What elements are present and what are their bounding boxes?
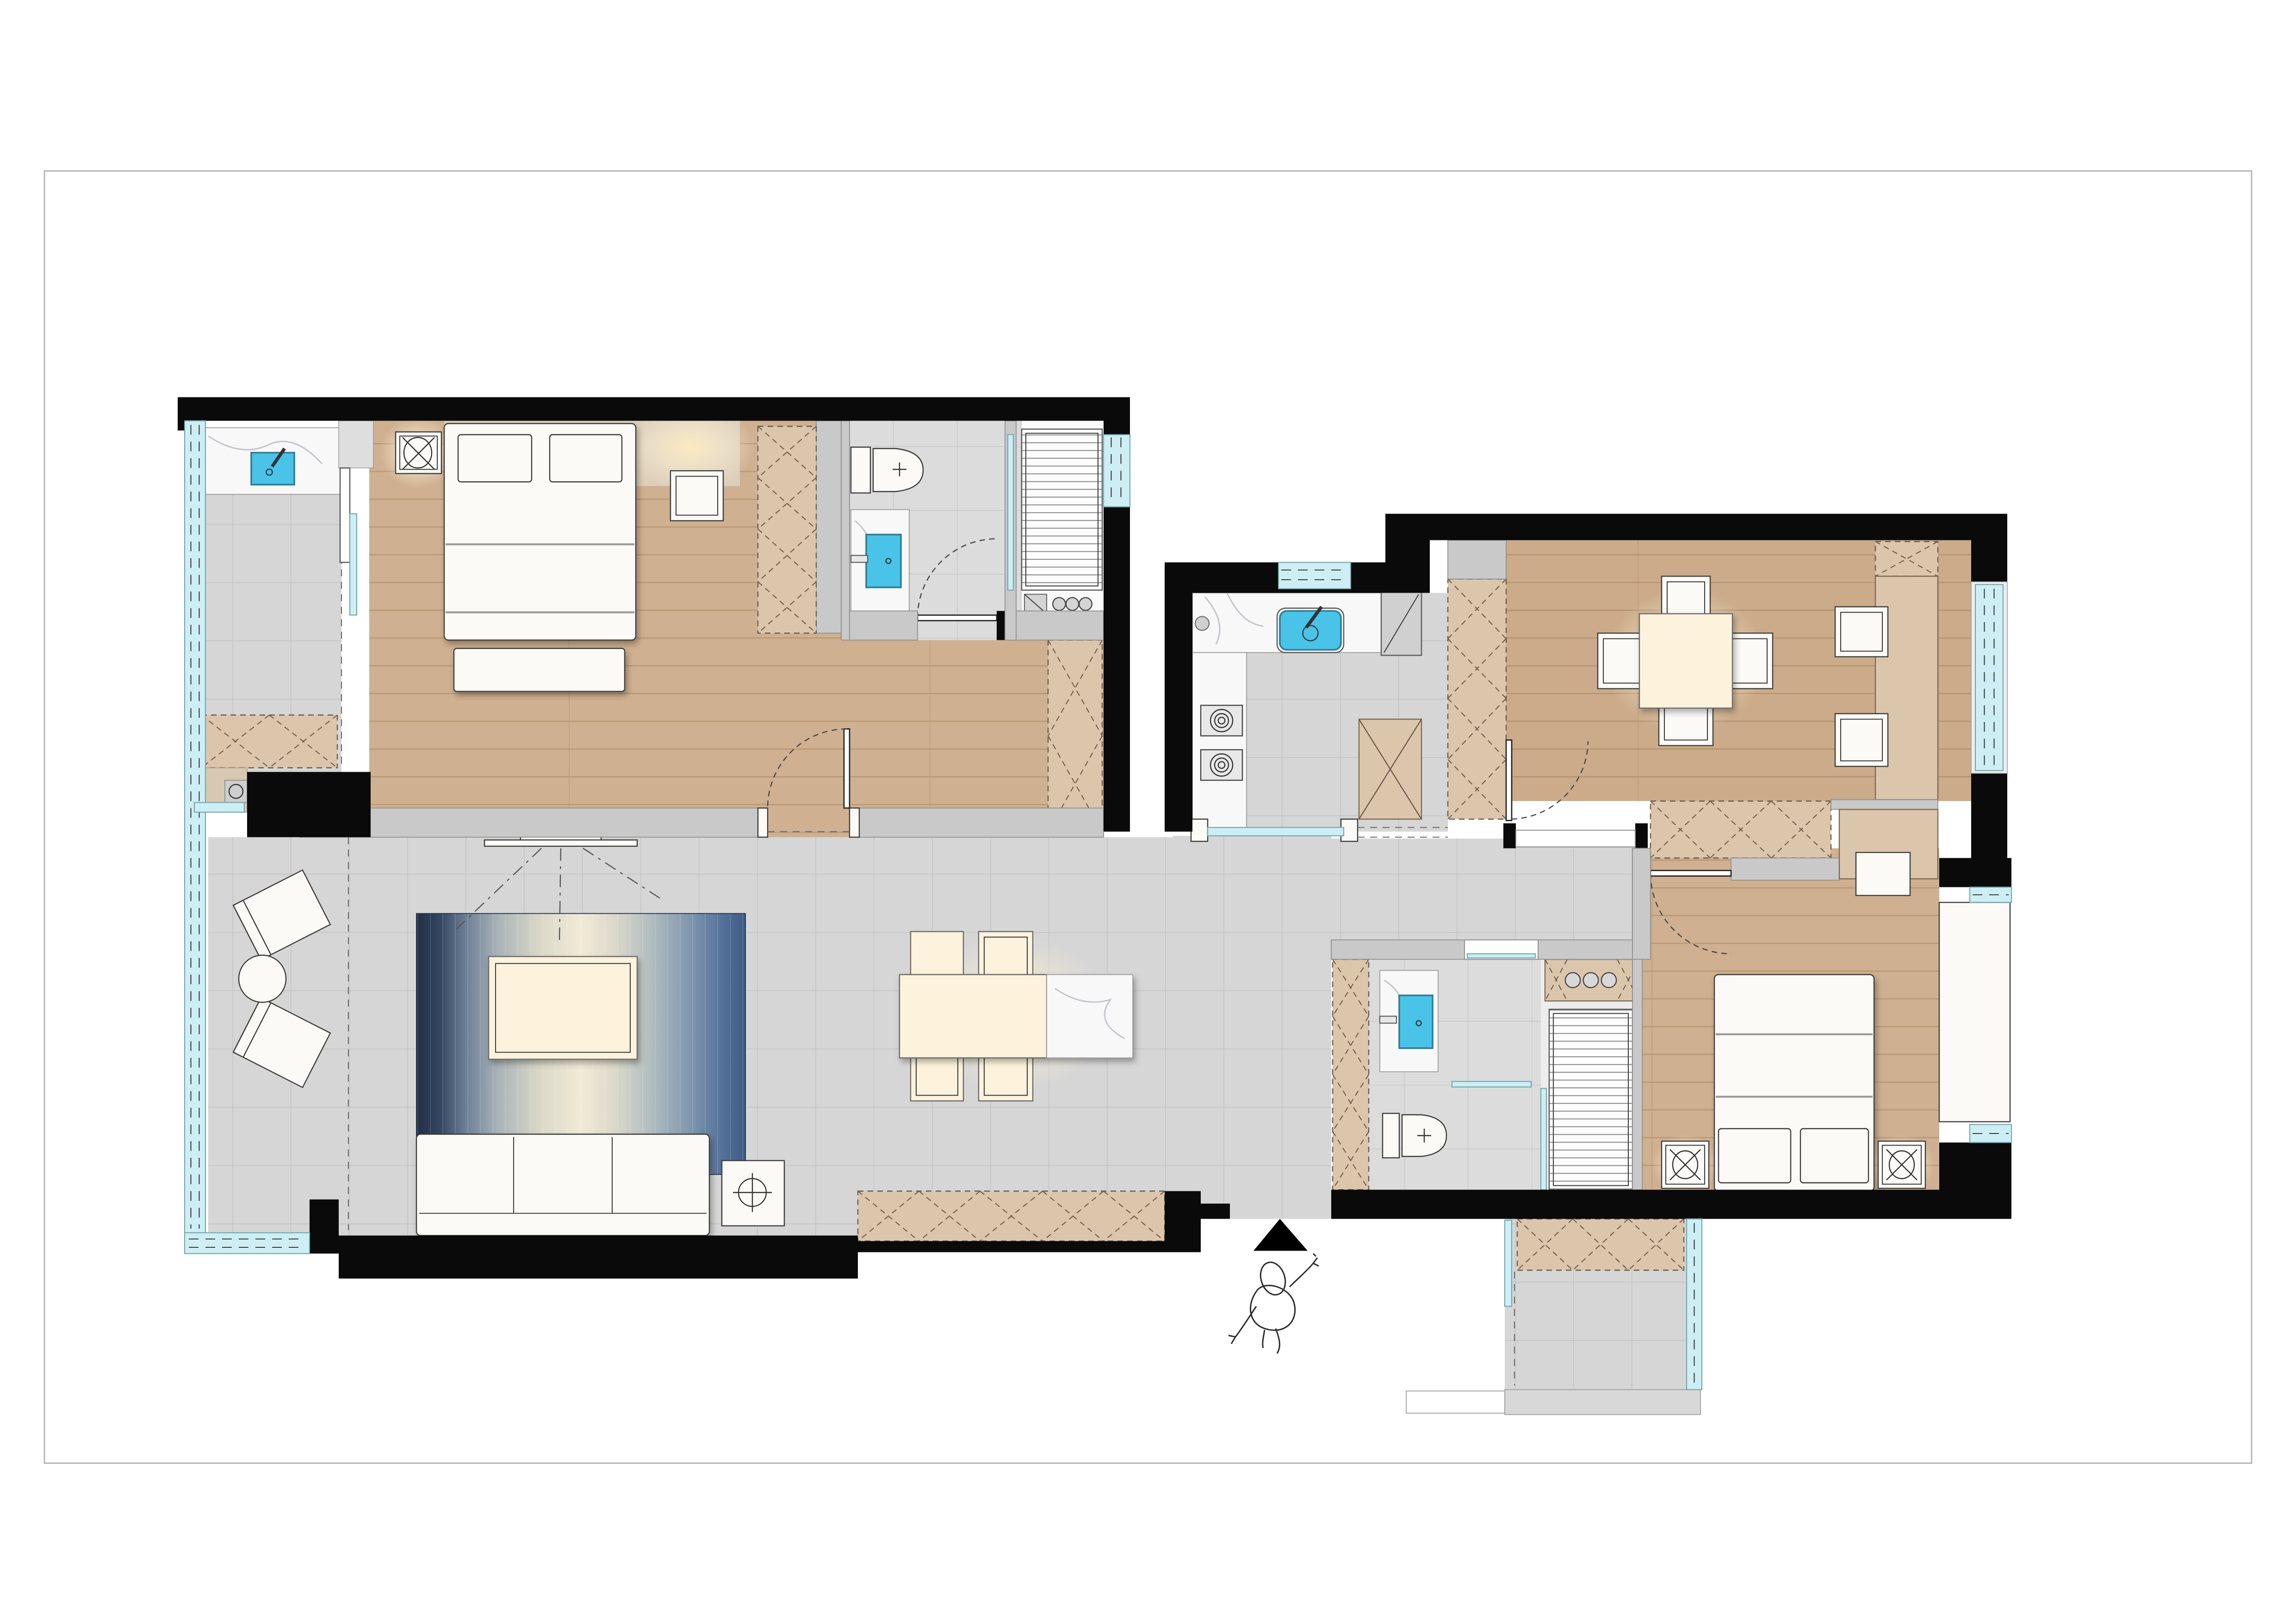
dining-top-wall bbox=[1430, 514, 2007, 540]
entry-arrow bbox=[1253, 1219, 1308, 1251]
slider-panel bbox=[340, 468, 350, 563]
corridor-living-wall bbox=[850, 808, 1104, 837]
heater-knob bbox=[1066, 598, 1079, 611]
door-jamb bbox=[850, 808, 859, 837]
dining-window bbox=[1975, 585, 2003, 771]
bay-window-bench bbox=[1939, 903, 2010, 1122]
double-bed bbox=[1714, 975, 1874, 1191]
nightstand-lamp-left bbox=[1662, 1141, 1709, 1189]
heater-knob bbox=[1079, 598, 1092, 611]
bedroom2-laundry-divider bbox=[1632, 960, 1642, 1190]
corner-nightstand bbox=[1856, 853, 1910, 896]
pantry-column bbox=[1448, 579, 1506, 819]
balcony-living-wall bbox=[247, 772, 371, 837]
tv-screen bbox=[484, 840, 637, 847]
person-body bbox=[1250, 1285, 1295, 1330]
door-jamb bbox=[1635, 824, 1648, 849]
toilet bbox=[1383, 1114, 1446, 1158]
sill-glass bbox=[1467, 954, 1535, 958]
kitchen-left-wall bbox=[1165, 563, 1192, 832]
vanity bbox=[851, 510, 909, 614]
pillow bbox=[1719, 1129, 1791, 1183]
porch-shoe-cabinet bbox=[1517, 1219, 1684, 1270]
wall-strip bbox=[1831, 800, 1938, 810]
door-jamb bbox=[1191, 819, 1208, 842]
faucet bbox=[1380, 1016, 1396, 1023]
foot-bench bbox=[454, 649, 625, 692]
corridor-cabinet bbox=[1048, 640, 1102, 832]
top-wall bbox=[178, 397, 1130, 421]
nightstand bbox=[670, 471, 723, 521]
person-legs bbox=[1263, 1329, 1280, 1354]
corridor-tile bbox=[1331, 839, 1642, 940]
desk-chair bbox=[1835, 714, 1888, 767]
laundry-sink bbox=[251, 453, 294, 485]
person-arm-raised bbox=[1290, 1254, 1319, 1287]
washer-knob bbox=[1565, 973, 1580, 987]
pillow bbox=[550, 435, 622, 482]
bathroom2-top-wall bbox=[1331, 940, 1464, 960]
balcony1-sliding-door bbox=[340, 468, 357, 615]
bathroom1-left-wall bbox=[841, 421, 850, 640]
drying-rack bbox=[1549, 1010, 1632, 1190]
bathroom1-bottom-wall bbox=[850, 611, 918, 640]
door-jamb bbox=[758, 808, 768, 837]
entry-left-column bbox=[1165, 1191, 1201, 1252]
person-arm-down bbox=[1229, 1307, 1256, 1344]
drying-zone-window bbox=[1104, 435, 1130, 507]
door-jamb bbox=[1503, 824, 1516, 849]
kitchen-counter-left bbox=[1192, 653, 1247, 832]
sliding-door-glass bbox=[1208, 828, 1344, 836]
washer-knob bbox=[1601, 973, 1616, 987]
ceiling-lamp bbox=[396, 432, 441, 474]
desk-chair bbox=[1835, 607, 1888, 657]
bath1-glass-partition bbox=[1008, 435, 1013, 590]
small-appliance bbox=[225, 781, 247, 803]
washer-knob bbox=[1583, 973, 1598, 987]
dining-table bbox=[1639, 614, 1732, 708]
pillow bbox=[458, 435, 532, 482]
entrance bbox=[1229, 1219, 1319, 1354]
coffee-table bbox=[489, 957, 637, 1059]
drying-zone bbox=[1022, 429, 1102, 636]
kitchen-sink bbox=[1277, 607, 1344, 653]
laundry-balcony-window-band bbox=[194, 803, 244, 812]
heater-knob bbox=[1053, 598, 1066, 611]
shower-glass-line bbox=[1452, 1082, 1531, 1087]
door-leaf bbox=[918, 615, 997, 621]
southwest-window bbox=[185, 1233, 310, 1254]
door-sill bbox=[1516, 830, 1635, 847]
basin bbox=[1399, 996, 1433, 1048]
vanity bbox=[1380, 971, 1438, 1072]
person-head bbox=[1257, 1259, 1290, 1298]
glass-strip bbox=[1541, 1089, 1546, 1190]
bedroom2-bay-top-wall bbox=[1939, 858, 2011, 887]
bedroom2-left-wall bbox=[1632, 849, 1651, 960]
porch-window-left bbox=[1505, 1220, 1512, 1307]
table-marble-end bbox=[1047, 975, 1133, 1058]
pillow bbox=[1800, 1129, 1868, 1183]
side-table-lamp bbox=[722, 1161, 784, 1226]
hall-storage-column bbox=[1333, 960, 1369, 1190]
door-leaf bbox=[844, 729, 850, 808]
door-wall bbox=[1731, 858, 1839, 880]
fridge bbox=[1381, 589, 1421, 656]
laundry-closet bbox=[1541, 960, 1639, 1190]
bottom-right-wall bbox=[1331, 1190, 2011, 1219]
sofa bbox=[416, 1134, 709, 1236]
gas-pipe bbox=[1195, 617, 1209, 631]
drying-rack bbox=[1022, 429, 1102, 590]
floor-plan-page bbox=[0, 0, 2296, 1623]
pantry-wall bbox=[1448, 540, 1506, 579]
porch-step bbox=[1505, 1390, 1700, 1415]
bathroom1-bottom-wall2 bbox=[1005, 611, 1104, 640]
person-figure bbox=[1229, 1254, 1319, 1354]
kitchen-dining-connector bbox=[1385, 514, 1430, 593]
door-jamb bbox=[997, 611, 1005, 640]
west-window-strip bbox=[185, 421, 205, 1233]
door-leaf bbox=[1651, 871, 1731, 876]
balcony-door-wall bbox=[339, 421, 373, 468]
table-top bbox=[900, 975, 1047, 1058]
toilet bbox=[851, 447, 923, 493]
tv-cabinet-wall bbox=[858, 1241, 1165, 1252]
balcony-cabinet bbox=[201, 715, 337, 768]
basin bbox=[866, 535, 901, 588]
bedroom2-bay-bottom-wall bbox=[1939, 1143, 2011, 1191]
round-table bbox=[239, 955, 286, 1003]
door-leaf bbox=[1506, 740, 1512, 821]
kitchen-window bbox=[1278, 563, 1351, 589]
sofa-wall bbox=[339, 1236, 858, 1279]
double-bed bbox=[444, 424, 636, 640]
slider-glass bbox=[350, 514, 357, 615]
nightstand-lamp-right bbox=[1878, 1141, 1925, 1189]
bedroom1-wardrobe bbox=[758, 421, 850, 633]
entry-wall-left bbox=[1201, 1204, 1230, 1219]
faucet bbox=[851, 556, 868, 563]
entry-step bbox=[1406, 1391, 1505, 1413]
hall-tile bbox=[1173, 836, 1331, 1219]
wardrobe-column bbox=[758, 427, 816, 633]
living-corner-wall bbox=[310, 1200, 339, 1254]
bathroom2-top-wall2 bbox=[1538, 940, 1642, 960]
floor-plan-canvas bbox=[0, 0, 2296, 1623]
